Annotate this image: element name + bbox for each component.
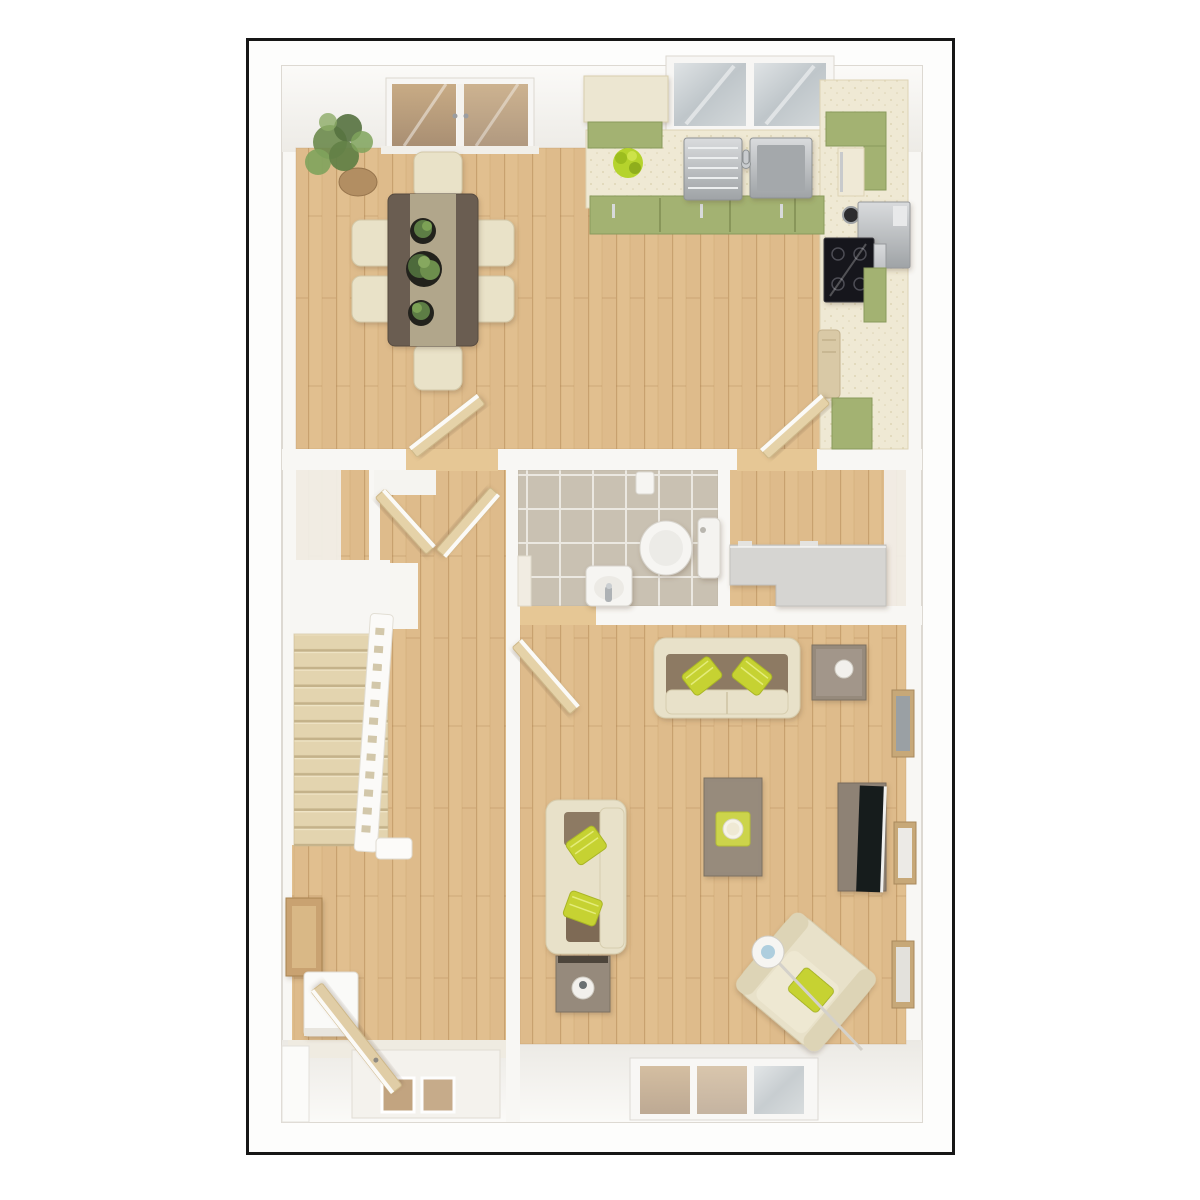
kitchen-storage-doorway	[737, 449, 817, 471]
newel-post	[376, 838, 412, 859]
coffee-table	[704, 778, 762, 876]
counter-plant	[613, 148, 643, 178]
plant-pot	[339, 168, 377, 196]
side-table	[812, 645, 866, 700]
lamp-bulb	[761, 945, 775, 959]
unit-tab	[800, 541, 818, 547]
hall-living-wall	[506, 624, 520, 1122]
living-window-pane	[697, 1066, 747, 1114]
sofa-top	[654, 638, 800, 718]
living-window-pane	[640, 1066, 690, 1114]
kitchen-window	[666, 56, 834, 134]
living-room-doorway	[520, 606, 596, 625]
picture-art	[896, 696, 910, 751]
wash-basin	[586, 566, 632, 606]
green-base-cabinets	[590, 196, 824, 234]
door-sill	[381, 146, 539, 154]
french-door-stile	[457, 84, 464, 146]
green-cabinet-mid	[864, 268, 886, 322]
living-room-window	[630, 1058, 818, 1120]
porch-niche	[282, 1046, 309, 1122]
toilet-cistern	[698, 518, 720, 578]
green-cabinet-side	[864, 146, 886, 190]
green-shelf	[588, 122, 662, 148]
wall-seg	[817, 449, 922, 470]
tv-unit	[838, 783, 887, 892]
hall-wc-wall	[506, 463, 518, 624]
end-table	[556, 956, 610, 1012]
wall-seg	[506, 606, 520, 625]
green-cabinet-top	[826, 112, 886, 146]
french-doors	[381, 78, 539, 154]
green-cabinet-bottom	[832, 398, 872, 449]
toilet-roll-holder	[636, 472, 654, 494]
unit-tab	[738, 541, 752, 547]
picture-art	[898, 828, 912, 878]
dining-chair	[414, 344, 462, 390]
dining-table	[388, 194, 478, 346]
upper-cabinet	[584, 76, 668, 122]
decor-dish	[835, 660, 853, 678]
storage-wall-shade	[884, 470, 906, 606]
door-handle	[464, 114, 469, 119]
hallway-floor	[378, 470, 506, 1046]
cabinet-handle	[840, 152, 843, 192]
end-table-edge	[558, 956, 608, 963]
mirror-glass	[292, 906, 316, 968]
wc-door-leaf	[518, 556, 531, 606]
screenshot-stage	[0, 0, 1200, 1200]
toilet	[640, 518, 720, 578]
appliance-detail	[893, 206, 907, 226]
sink-basin-inner	[757, 145, 805, 191]
front-door-glass	[422, 1078, 454, 1112]
sofa-seat-cushions	[600, 808, 624, 948]
dining-chair	[414, 152, 462, 198]
wall-seg	[282, 449, 406, 470]
kettle	[843, 207, 859, 223]
middle-bottom-wall	[596, 606, 922, 625]
picture-art	[896, 947, 910, 1002]
sofa-left	[546, 800, 626, 954]
faucet-stem	[743, 150, 749, 164]
floorplan-svg	[0, 0, 1200, 1200]
door-handle	[453, 114, 458, 119]
toilet-seat	[649, 530, 683, 566]
living-window-pane	[754, 1066, 804, 1114]
wall-seg	[498, 449, 737, 470]
picture-frames	[892, 690, 916, 1008]
